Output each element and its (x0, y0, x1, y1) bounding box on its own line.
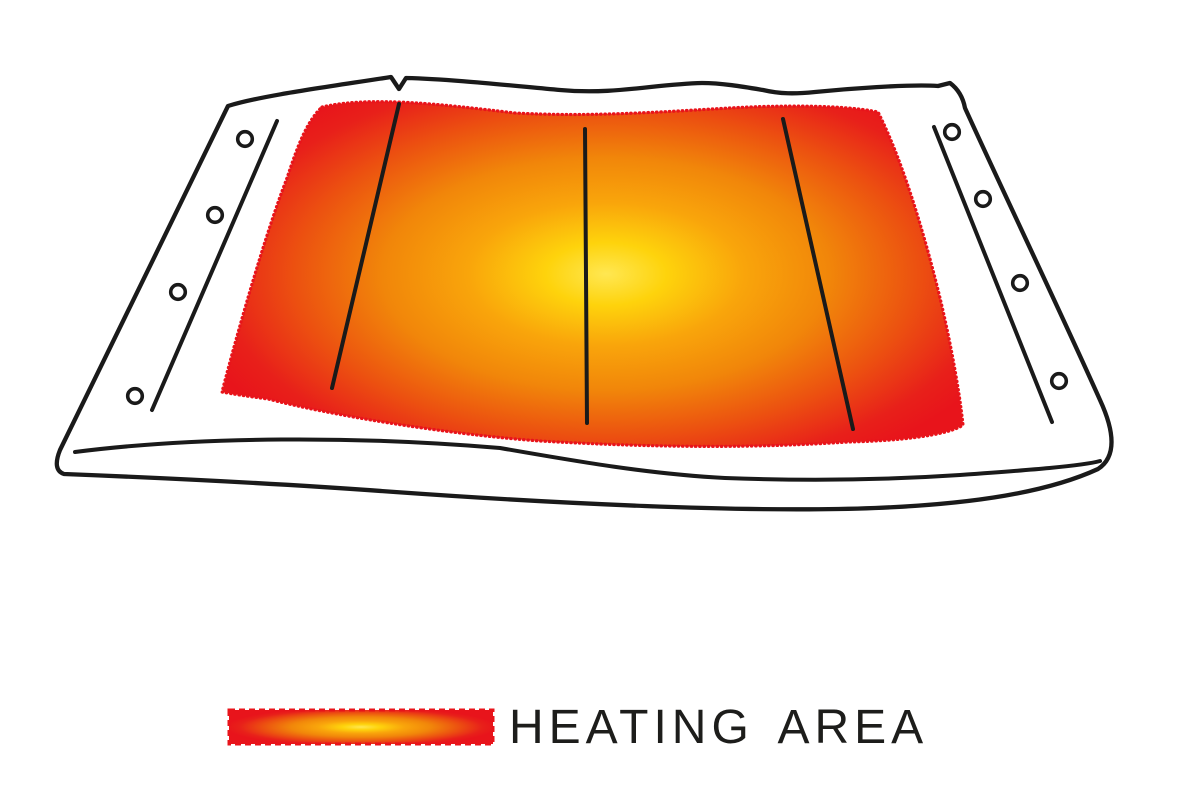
legend-label: HEATING AREA (509, 701, 928, 754)
snap-hole (945, 125, 960, 140)
snap-hole (1052, 374, 1067, 389)
snap-hole (1013, 276, 1028, 291)
snap-hole (208, 208, 223, 223)
diagram-canvas: HEATING AREA (0, 0, 1200, 800)
legend-swatch (229, 710, 493, 744)
snap-hole (238, 132, 253, 147)
snap-hole (976, 192, 991, 207)
snap-hole (171, 285, 186, 300)
snap-hole (128, 389, 143, 404)
heating-wire (585, 129, 587, 423)
legend: HEATING AREA (229, 701, 928, 754)
heating-area (222, 102, 963, 447)
heating-pad-diagram: HEATING AREA (0, 0, 1200, 800)
